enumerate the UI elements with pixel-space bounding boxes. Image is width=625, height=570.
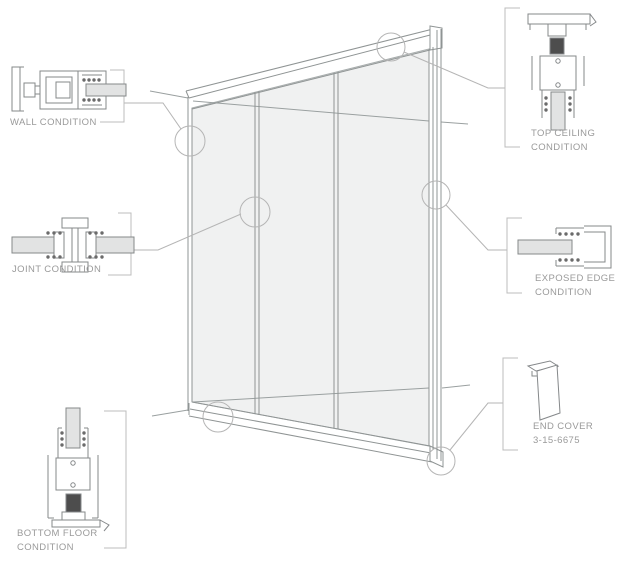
top-ceiling-detail-glass [551,92,565,130]
diagram-canvas [0,0,625,570]
callout-circle-top-ceiling [377,33,405,61]
top-rail-end-cap [430,26,442,50]
bottom-floor-label-line2: CONDITION [17,541,98,555]
joint-detail-glass-left [12,237,56,253]
exposed-edge-detail-glass [518,240,572,254]
joint-condition-label: JOINT CONDITION [12,263,101,277]
bottom-floor-label-line1: BOTTOM FLOOR [17,527,98,541]
exposed-edge-label-line2: CONDITION [535,286,615,300]
bottom-floor-detail-shim [66,494,81,512]
leader-exposed-edge [446,205,507,250]
main-wall-drawing [150,26,470,467]
bracket-top-ceiling [505,8,520,147]
top-ceiling-condition-label: TOP CEILING CONDITION [531,127,595,155]
wall-condition-label: WALL CONDITION [10,116,97,130]
top-ceiling-detail-shim [550,38,564,54]
exposed-edge-condition-detail-drawing [518,226,611,268]
left-post [188,97,192,411]
end-cover-label: END COVER 3-15-6675 [533,420,593,448]
bottom-floor-condition-label: BOTTOM FLOOR CONDITION [17,527,98,555]
wall-condition-detail-drawing [12,67,126,111]
joint-detail-glass-right [94,237,134,253]
top-ceiling-label-line2: CONDITION [531,141,595,155]
diagram-stage: WALL CONDITION JOINT CONDITION BOTTOM FL… [0,0,625,570]
joint-condition-label-line1: JOINT CONDITION [12,263,101,277]
end-cover-label-line1: END COVER [533,420,593,434]
leader-wall [124,103,181,129]
leader-end-cover [450,403,503,450]
exposed-edge-condition-label: EXPOSED EDGE CONDITION [535,272,615,300]
end-cover-label-line2: 3-15-6675 [533,434,593,448]
bracket-exposed-edge [507,218,522,293]
bottom-floor-condition-detail-drawing [48,408,109,531]
end-cover-detail-drawing [528,361,560,420]
wall-detail-glass [86,84,126,96]
wall-condition-label-line1: WALL CONDITION [10,116,97,130]
top-ceiling-condition-detail-drawing [528,14,596,130]
top-ceiling-label-line1: TOP CEILING [531,127,595,141]
glass-panels-plane [192,49,429,446]
end-cover-body [537,365,560,420]
exposed-edge-label-line1: EXPOSED EDGE [535,272,615,286]
bracket-end-cover [503,358,518,450]
right-post-end-cover [429,29,441,461]
bottom-floor-detail-glass [66,408,80,448]
